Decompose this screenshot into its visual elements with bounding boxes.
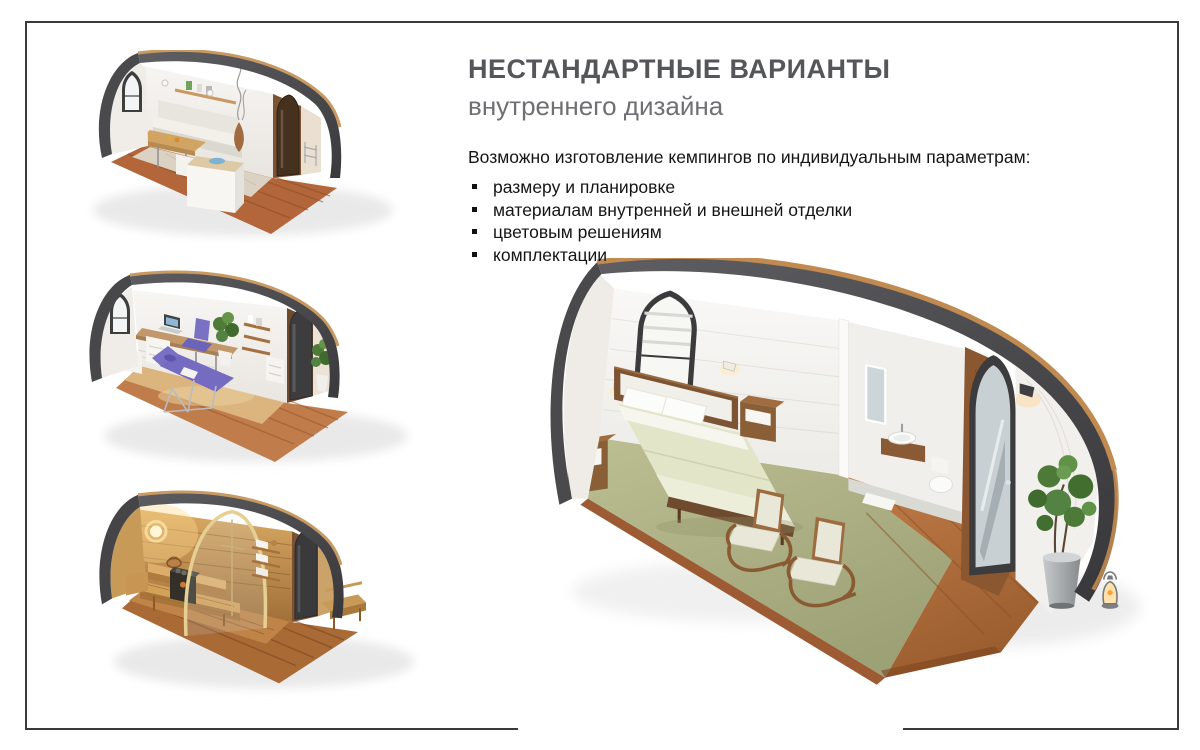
- figure-bedroom-pod: [530, 258, 1150, 713]
- sauna-pod-3d-render: [74, 486, 424, 708]
- slide: НЕСТАНДАРТНЫЕ ВАРИАНТЫ внутреннего дизай…: [0, 0, 1200, 750]
- intro-text: Возможно изготовление кемпингов по индив…: [468, 147, 1148, 169]
- figure-whitespace-overlap: [518, 710, 903, 746]
- content-block: НЕСТАНДАРТНЫЕ ВАРИАНТЫ внутреннего дизай…: [468, 55, 1148, 266]
- list-item-label: цветовым решениям: [493, 222, 662, 242]
- list-item: размеру и планировке: [468, 176, 1148, 199]
- list-item-label: размеру и планировке: [493, 177, 675, 197]
- list-item-label: комплектации: [493, 245, 607, 265]
- list-item: цветовым решениям: [468, 221, 1148, 244]
- bullet-square-icon: [472, 229, 477, 234]
- bullet-square-icon: [472, 252, 477, 257]
- figure-office-pod: [66, 266, 416, 481]
- figure-living-pod: [58, 50, 403, 255]
- list-item: материалам внутренней и внешней отделки: [468, 199, 1148, 222]
- living-pod-3d-render: [58, 50, 403, 255]
- list-item-label: материалам внутренней и внешней отделки: [493, 200, 852, 220]
- page-title: НЕСТАНДАРТНЫЕ ВАРИАНТЫ: [468, 55, 1148, 85]
- bullet-square-icon: [472, 207, 477, 212]
- params-list: размеру и планировке материалам внутренн…: [468, 176, 1148, 266]
- figure-sauna-pod: [74, 486, 424, 708]
- bullet-square-icon: [472, 184, 477, 189]
- list-item: комплектации: [468, 244, 1148, 267]
- page-subtitle: внутреннего дизайна: [468, 92, 1148, 121]
- office-pod-3d-render: [66, 266, 416, 481]
- bedroom-pod-3d-render: [530, 258, 1150, 713]
